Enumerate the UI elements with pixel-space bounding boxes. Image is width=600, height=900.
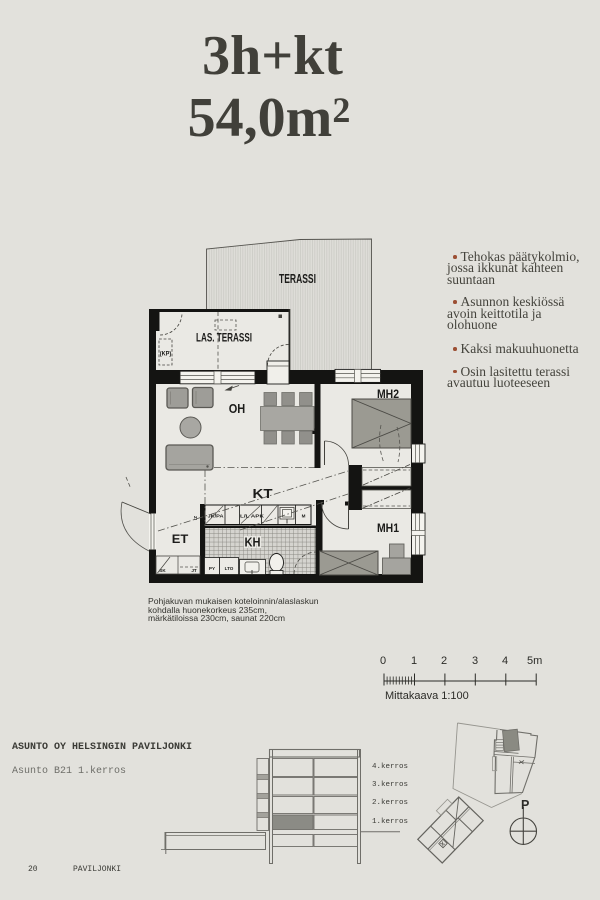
svg-text:PY: PY: [209, 566, 215, 571]
svg-text:SK: SK: [159, 568, 166, 573]
svg-text:JT: JT: [191, 568, 197, 573]
svg-text:M: M: [302, 514, 306, 519]
svg-text:P: P: [521, 798, 529, 812]
svg-text:LAS. TERASSI: LAS. TERASSI: [196, 331, 252, 345]
svg-text:MH1: MH1: [377, 523, 400, 535]
svg-text:KT: KT: [253, 486, 273, 501]
svg-text:L/L APK: L/L APK: [240, 514, 265, 519]
svg-text:(KP): (KP): [160, 351, 172, 358]
svg-text:ET: ET: [172, 532, 189, 546]
svg-text:TERASSI: TERASSI: [279, 272, 316, 286]
svg-text:KH: KH: [245, 536, 261, 550]
svg-text:MH2: MH2: [377, 389, 399, 401]
svg-text:OH: OH: [229, 402, 246, 416]
svg-text:LTO: LTO: [225, 566, 234, 571]
